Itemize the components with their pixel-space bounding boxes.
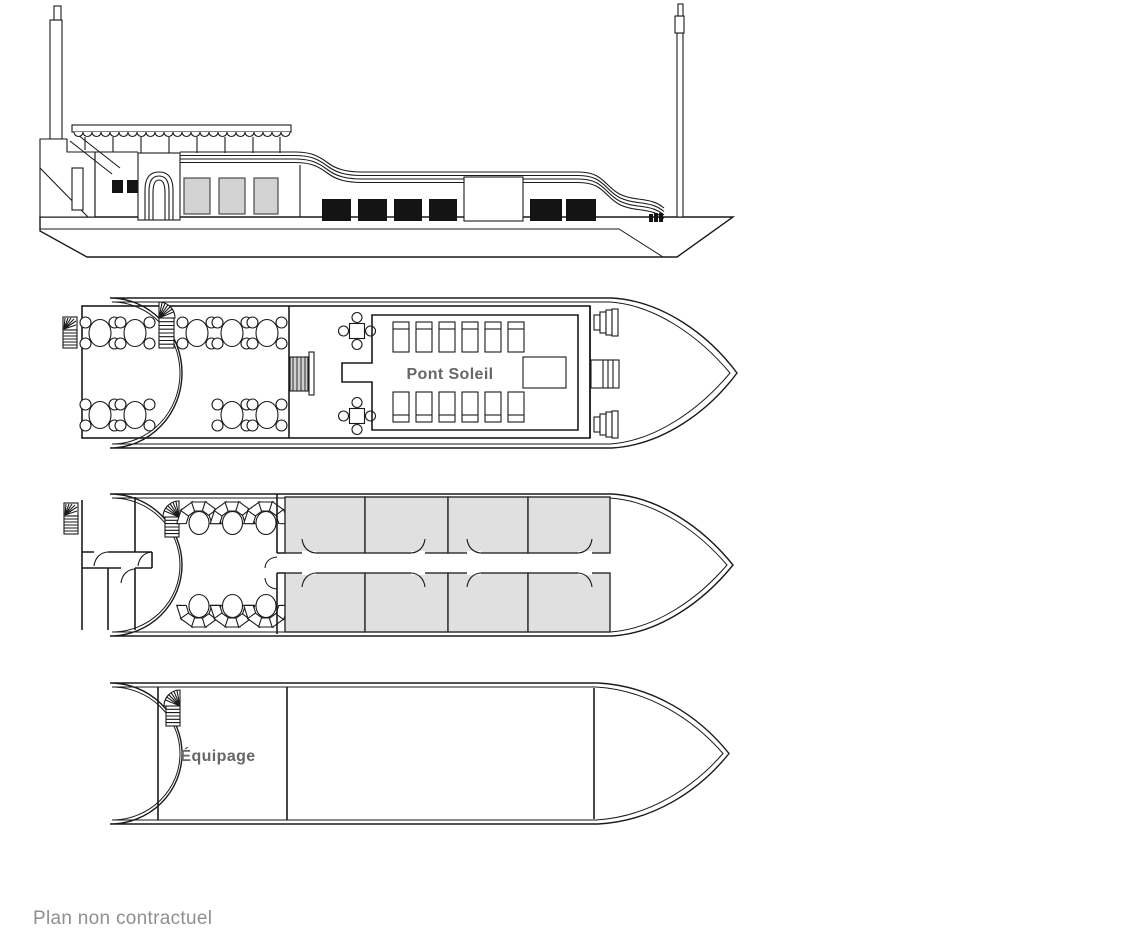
- small-window-dark-2: [127, 180, 138, 193]
- awning-posts: [85, 137, 280, 153]
- stern-stairs-icon: [64, 503, 78, 534]
- aft-mast: [50, 6, 62, 139]
- footnote: Plan non contractuel: [33, 908, 212, 930]
- small-window-dark-1: [112, 180, 123, 193]
- stern-structure: [40, 135, 120, 217]
- stern-rooms: [64, 497, 152, 630]
- bollards: [649, 213, 663, 222]
- boat-side-view: [40, 4, 733, 257]
- cabins-bottom-row: [285, 573, 610, 632]
- saloon-windows-gray: [184, 178, 278, 214]
- gangway-icon: [290, 352, 314, 395]
- sun-deck-plan: Pont Soleil: [63, 298, 737, 448]
- fore-mast: [675, 4, 684, 217]
- lower-cabin-windows-dark: [322, 177, 596, 221]
- crew-deck-label: Équipage: [180, 746, 255, 765]
- deck-table: [523, 357, 566, 388]
- crew-deck-plan: Équipage: [110, 683, 729, 824]
- bow-stairs: [590, 306, 619, 438]
- barge-deck-plan: Pont Soleil: [0, 0, 1122, 945]
- stern-stairs-icon: [63, 317, 77, 348]
- cabins-top-row: [285, 497, 610, 553]
- sun-deck-label: Pont Soleil: [406, 366, 493, 383]
- plan-drawing: Pont Soleil: [0, 0, 1122, 945]
- arched-door: [138, 153, 180, 220]
- cabin-deck-plan: [64, 494, 733, 636]
- curved-stairs-icon: [159, 302, 175, 348]
- awning-canopy: [72, 125, 291, 153]
- hull-side: [40, 217, 733, 257]
- wheelhouse-window: [464, 177, 523, 221]
